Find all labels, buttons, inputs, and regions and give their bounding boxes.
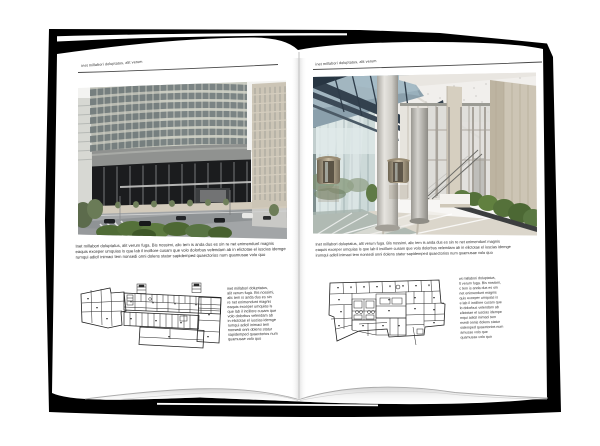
svg-text:quamusae volo quo: quamusae volo quo <box>228 337 261 342</box>
svg-text:quamusae volo quo: quamusae volo quo <box>460 335 491 340</box>
svg-text:amusae volo que: amusae volo que <box>460 330 487 335</box>
